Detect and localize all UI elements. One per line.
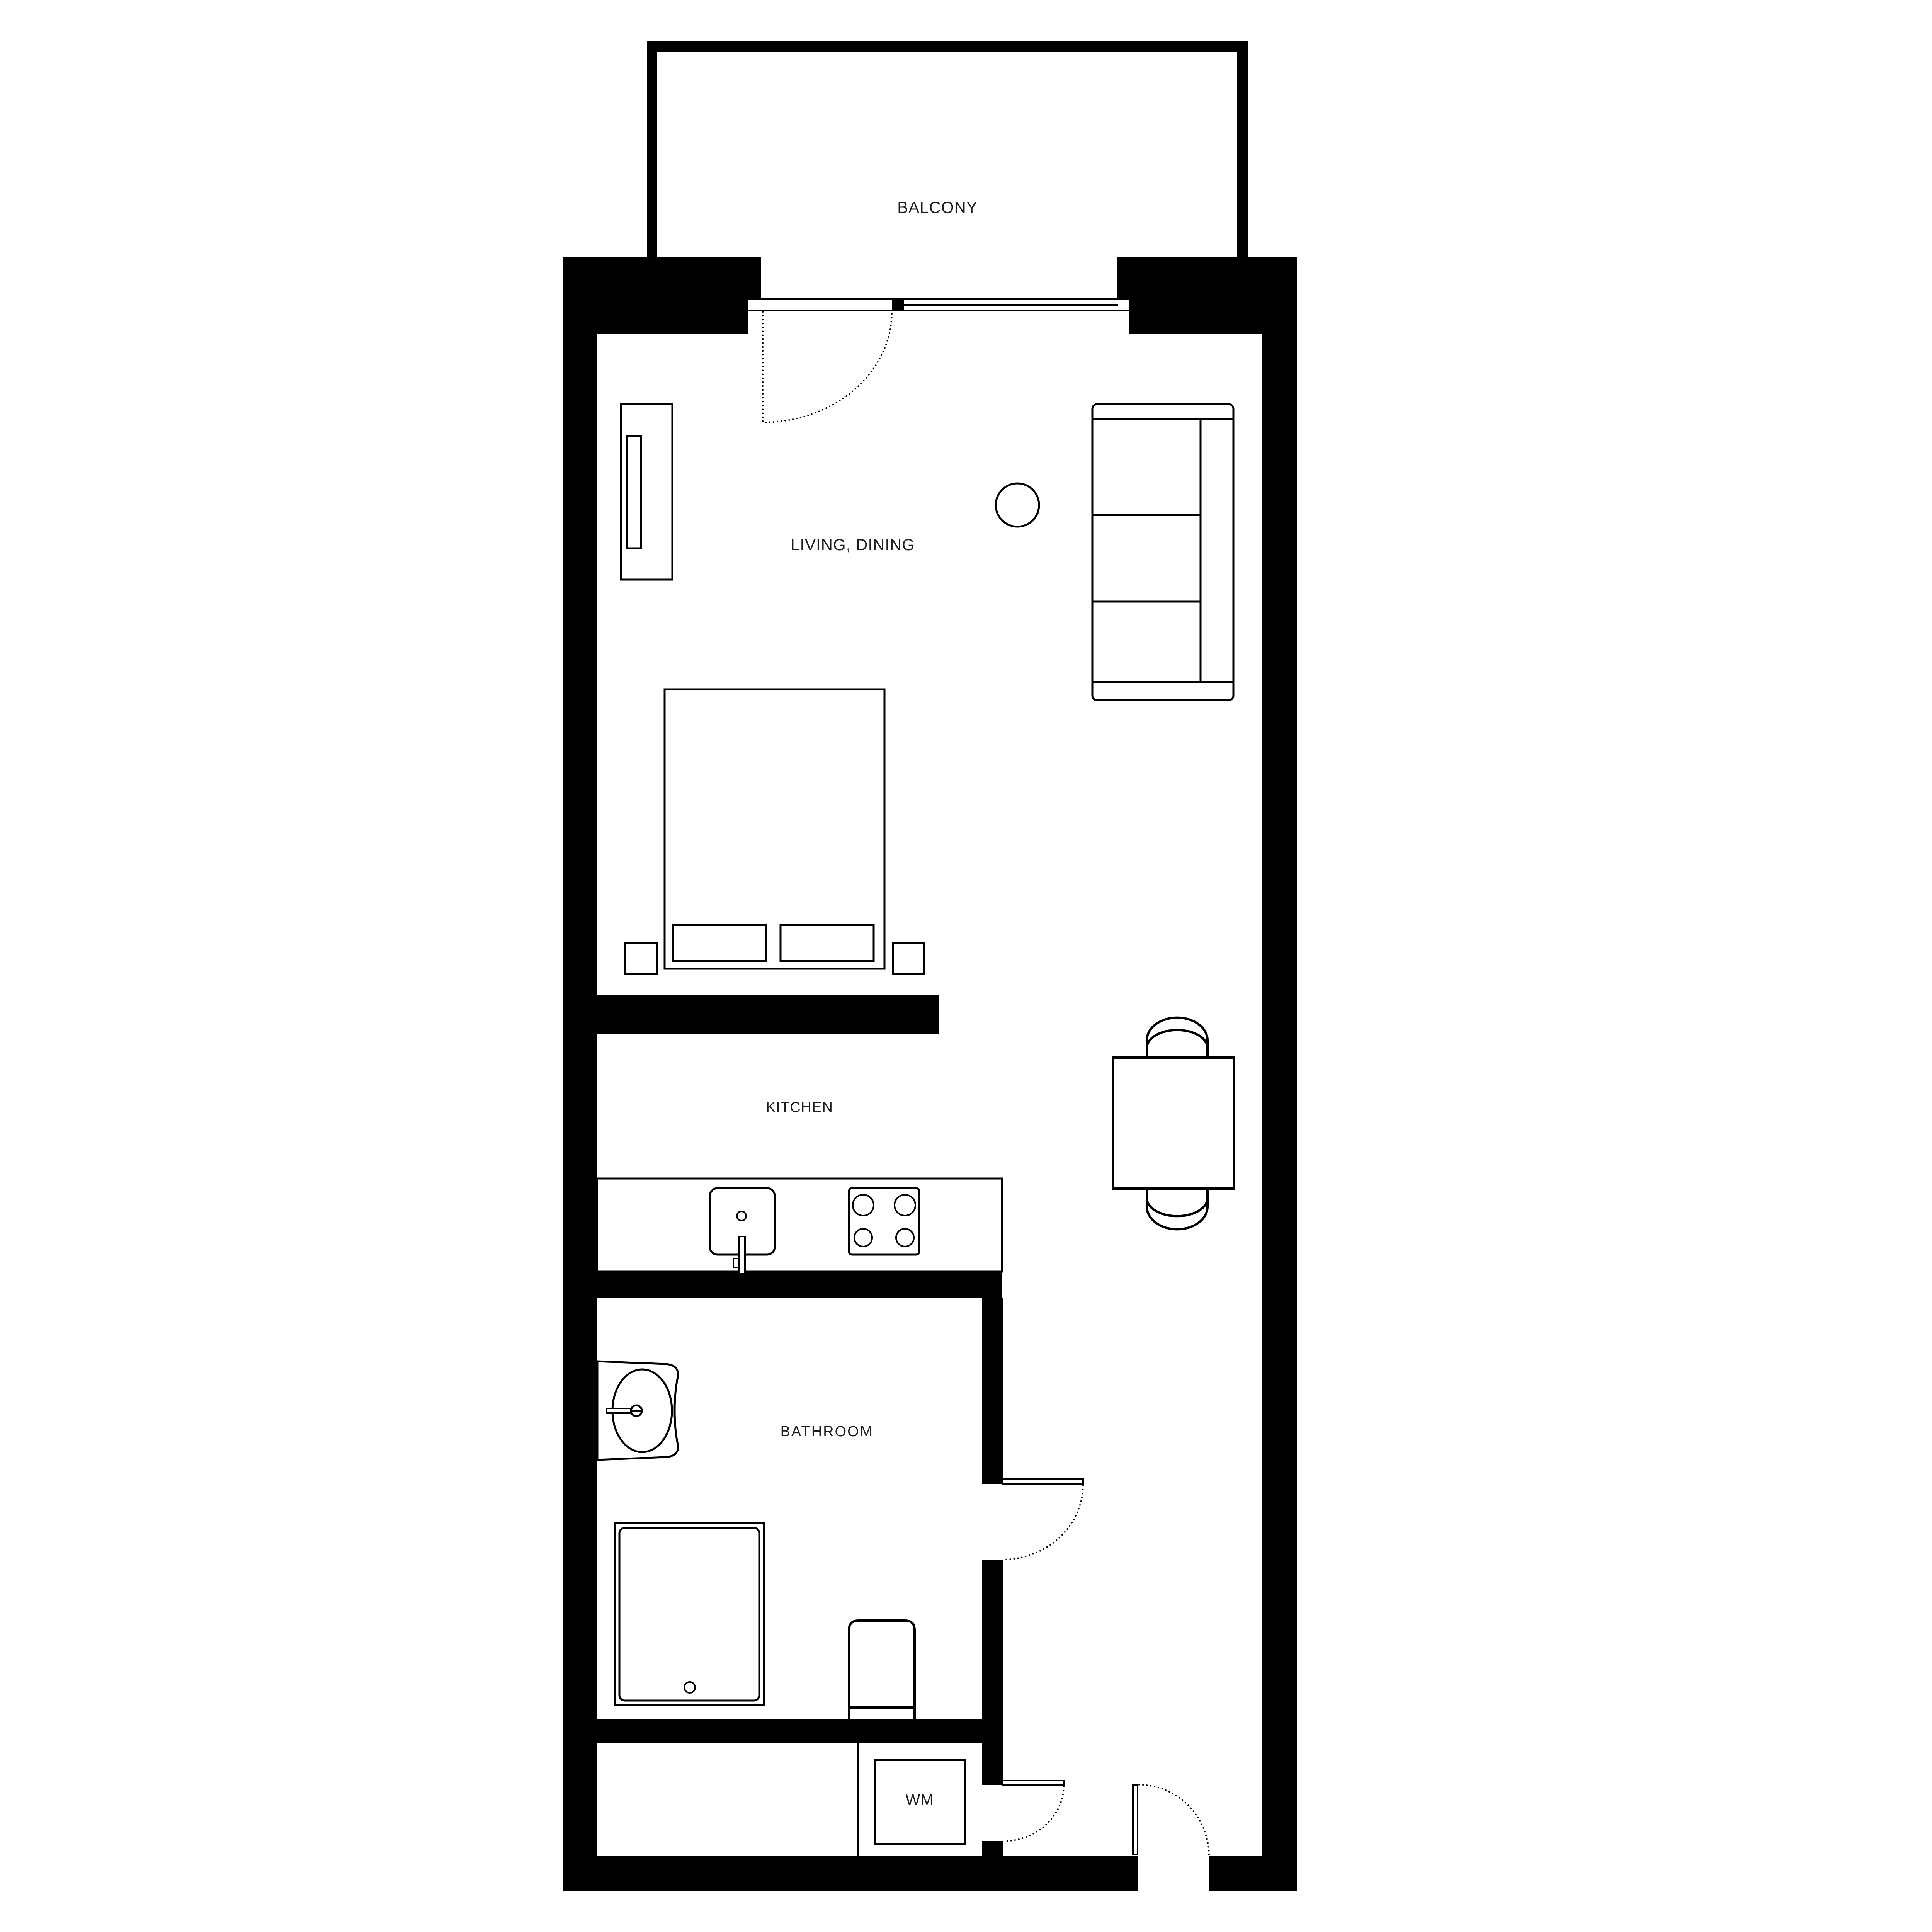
svg-text:KITCHEN: KITCHEN <box>766 1099 833 1116</box>
svg-text:BATHROOM: BATHROOM <box>781 1423 874 1440</box>
svg-text:BALCONY: BALCONY <box>897 198 978 216</box>
svg-text:WM: WM <box>905 1791 934 1808</box>
svg-text:LIVING, DINING: LIVING, DINING <box>791 536 915 554</box>
